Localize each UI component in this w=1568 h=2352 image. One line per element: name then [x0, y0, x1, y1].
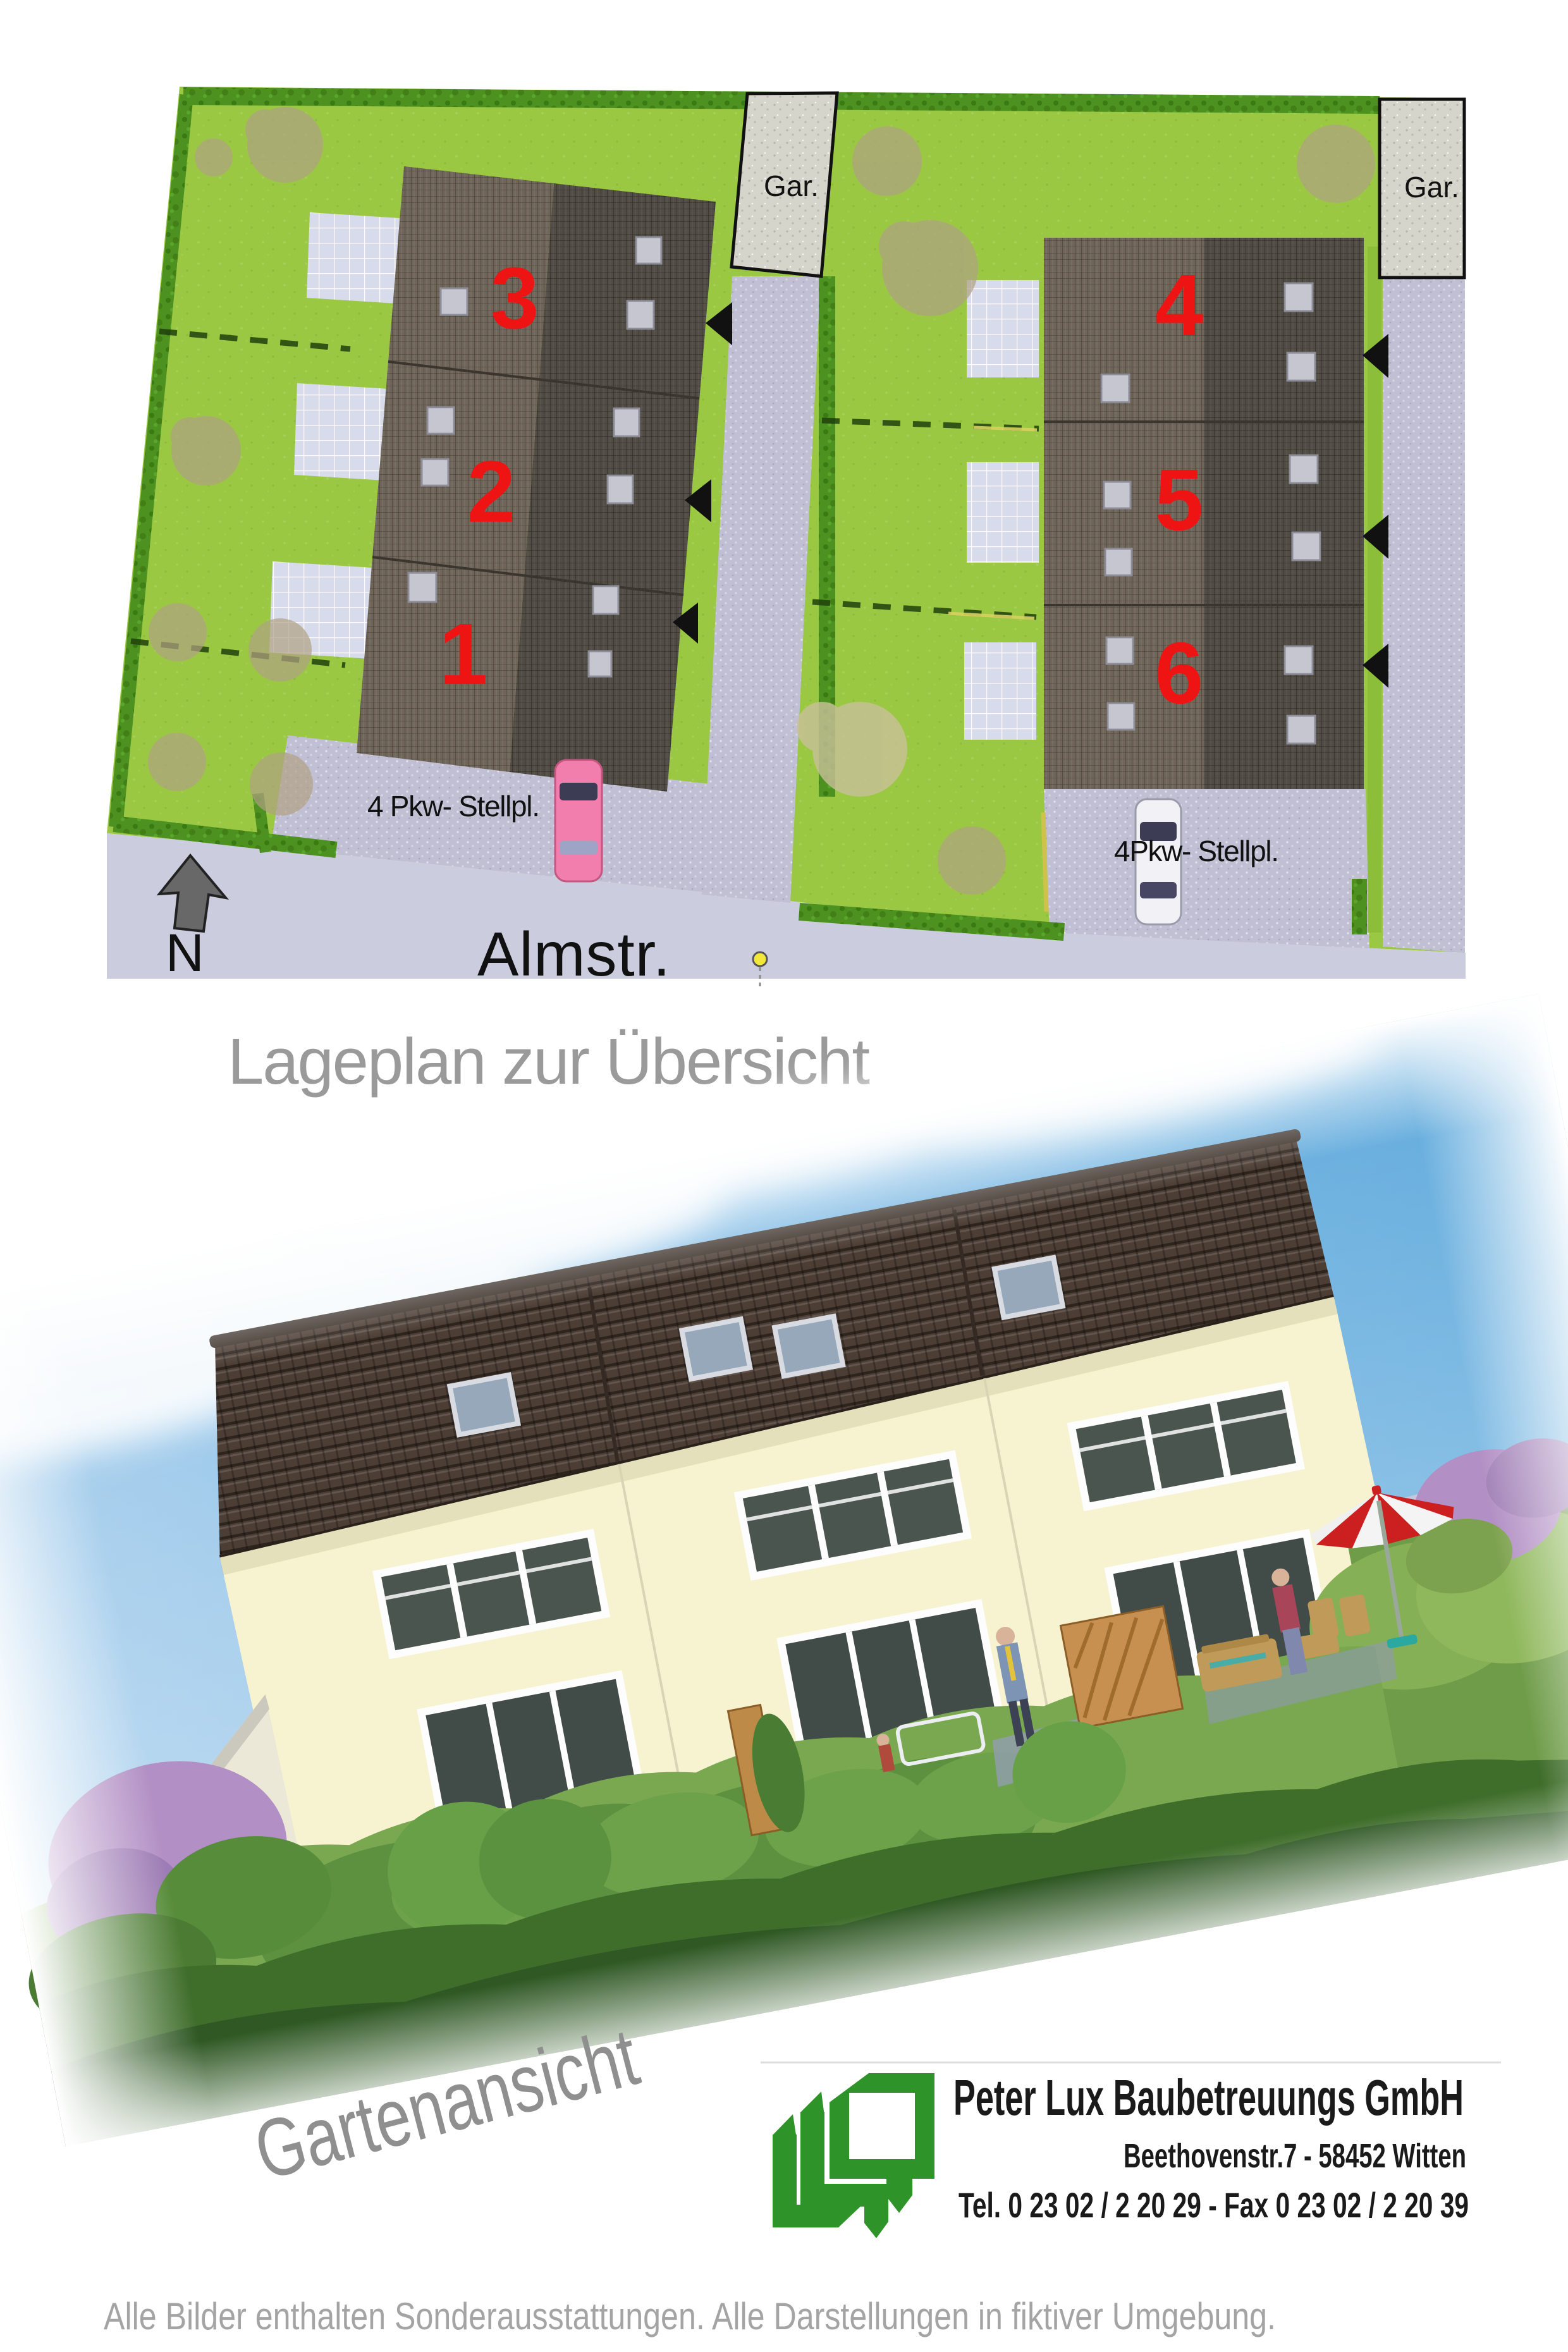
svg-text:Lageplan zur Übersicht: Lageplan zur Übersicht	[228, 1025, 870, 1098]
svg-text:Gar.: Gar.	[1404, 171, 1459, 204]
svg-text:Alle Bilder enthalten Sonderau: Alle Bilder enthalten Sonderausstattunge…	[104, 2295, 1276, 2337]
svg-text:Beethovenstr.7 - 58452 Witte: Beethovenstr.7 - 58452 Witten	[1124, 2137, 1466, 2175]
svg-text:Tel. 0 23 02 / 2 20 29 - Fax: Tel. 0 23 02 / 2 20 29 - Fax 0 23 02 / 2…	[959, 2185, 1469, 2225]
svg-text:4: 4	[1155, 257, 1204, 354]
svg-text:4 Pkw- Stellpl.: 4 Pkw- Stellpl.	[367, 790, 540, 823]
svg-text:5: 5	[1155, 451, 1204, 549]
svg-text:6: 6	[1155, 625, 1204, 722]
svg-text:N: N	[166, 923, 204, 983]
svg-text:1: 1	[439, 606, 488, 703]
svg-text:Almstr.: Almstr.	[477, 919, 670, 989]
svg-text:4Pkw- Stellpl.: 4Pkw- Stellpl.	[1114, 835, 1279, 867]
svg-text:3: 3	[491, 250, 539, 347]
svg-text:Gar.: Gar.	[764, 169, 819, 202]
svg-text:Peter Lux Baubetreuungs GmbH: Peter Lux Baubetreuungs GmbH	[953, 2069, 1464, 2126]
svg-text:2: 2	[467, 443, 516, 541]
